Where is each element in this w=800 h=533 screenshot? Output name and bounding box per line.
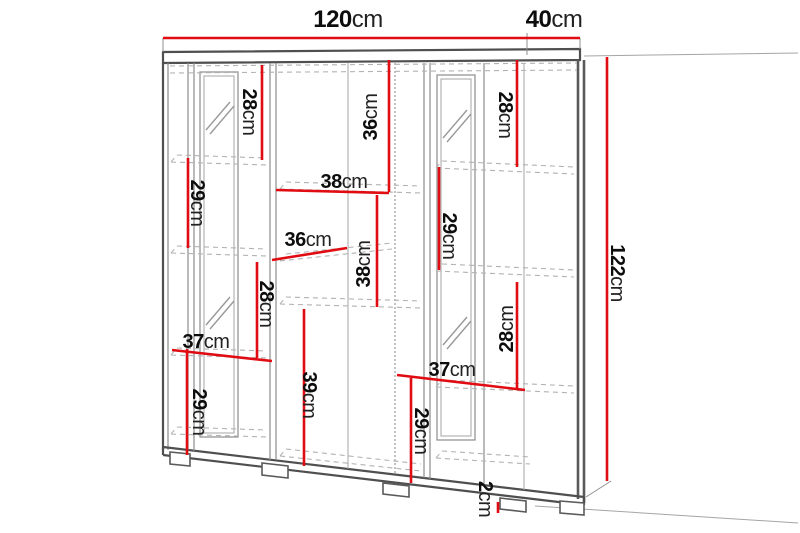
dimension-line-center-shelf-width — [276, 190, 389, 193]
glass-shine-marks — [206, 102, 234, 329]
dimension-lines — [163, 38, 607, 513]
cabinet-left-edge — [163, 63, 168, 450]
cabinet-feet — [170, 452, 584, 515]
room-lines — [535, 53, 798, 523]
glass-shine-marks — [443, 110, 471, 349]
right-glass-door — [437, 75, 475, 440]
diagram-stage: 120cm40cm122cm28cm29cm28cm29cm37cm39cm36… — [0, 0, 800, 533]
cabinet-drawing — [0, 0, 800, 533]
cabinet-bottom-panel — [163, 447, 584, 505]
cabinet-right-edge — [578, 60, 584, 503]
